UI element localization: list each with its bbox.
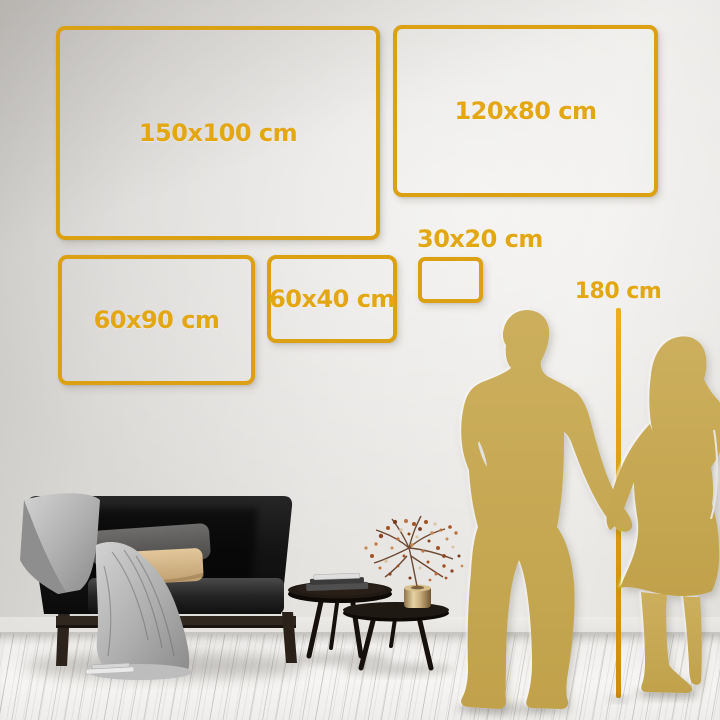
frame-150x100-label: 150x100 cm (139, 119, 297, 147)
wood-plank-floor (0, 634, 720, 720)
frame-60x40-label: 60x40 cm (269, 285, 395, 313)
frame-120x80-label: 120x80 cm (454, 97, 596, 125)
frame-60x40: 60x40 cm (267, 255, 397, 343)
frame-60x90-label: 60x90 cm (94, 306, 220, 334)
frame-30x20: 30x20 cm (418, 257, 483, 303)
baseboard (0, 617, 720, 634)
frame-30x20-label: 30x20 cm (417, 225, 543, 253)
size-chart-page: { "size_comparison": { "frames": [ { "la… (0, 0, 720, 720)
frame-150x100: 150x100 cm (56, 26, 380, 240)
height-measure-line (616, 308, 621, 698)
height-marker-label: 180 cm (566, 279, 670, 304)
frame-120x80: 120x80 cm (393, 25, 658, 197)
frame-60x90: 60x90 cm (58, 255, 255, 385)
